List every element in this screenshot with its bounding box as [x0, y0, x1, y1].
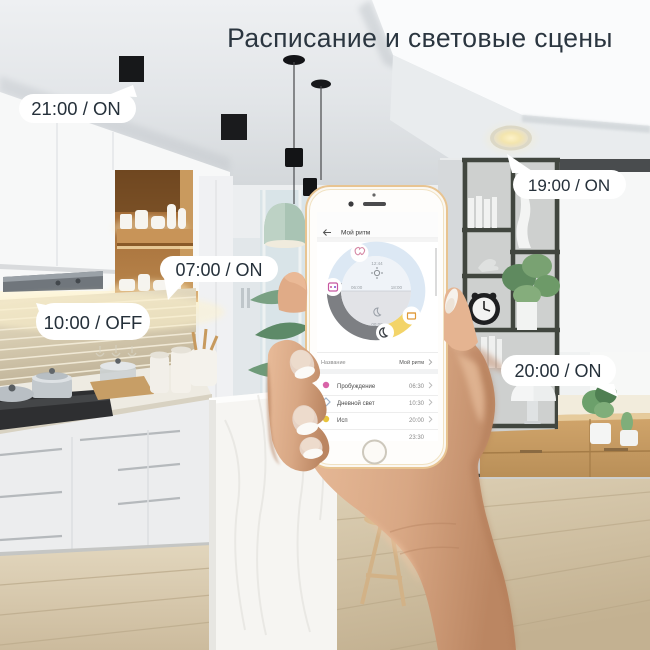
svg-text:23:30: 23:30: [409, 435, 425, 441]
svg-text:06:30: 06:30: [409, 384, 425, 390]
svg-text:19:00 / ON: 19:00 / ON: [528, 176, 610, 195]
svg-text:12:44: 12:44: [371, 261, 383, 266]
svg-text:20:00 / ON: 20:00 / ON: [514, 361, 601, 381]
svg-text:06:00: 06:00: [351, 285, 363, 290]
svg-text:Мой ритм: Мой ритм: [341, 229, 371, 237]
svg-text:18:00: 18:00: [391, 285, 403, 290]
svg-text:Исп: Исп: [337, 418, 348, 424]
svg-text:Расписание и световые сцены: Расписание и световые сцены: [227, 23, 613, 53]
svg-text:20:00: 20:00: [409, 418, 425, 424]
svg-text:Пробуждение: Пробуждение: [337, 384, 376, 390]
svg-text:10:30: 10:30: [409, 401, 425, 407]
svg-text:Название: Название: [321, 360, 346, 366]
svg-text:Дневной свет: Дневной свет: [337, 400, 375, 407]
svg-text:07:00 / ON: 07:00 / ON: [175, 260, 262, 280]
svg-text:10:00 / OFF: 10:00 / OFF: [44, 312, 143, 333]
svg-text:21:00 / ON: 21:00 / ON: [31, 98, 120, 119]
svg-text:Мой ритм: Мой ритм: [399, 359, 424, 366]
